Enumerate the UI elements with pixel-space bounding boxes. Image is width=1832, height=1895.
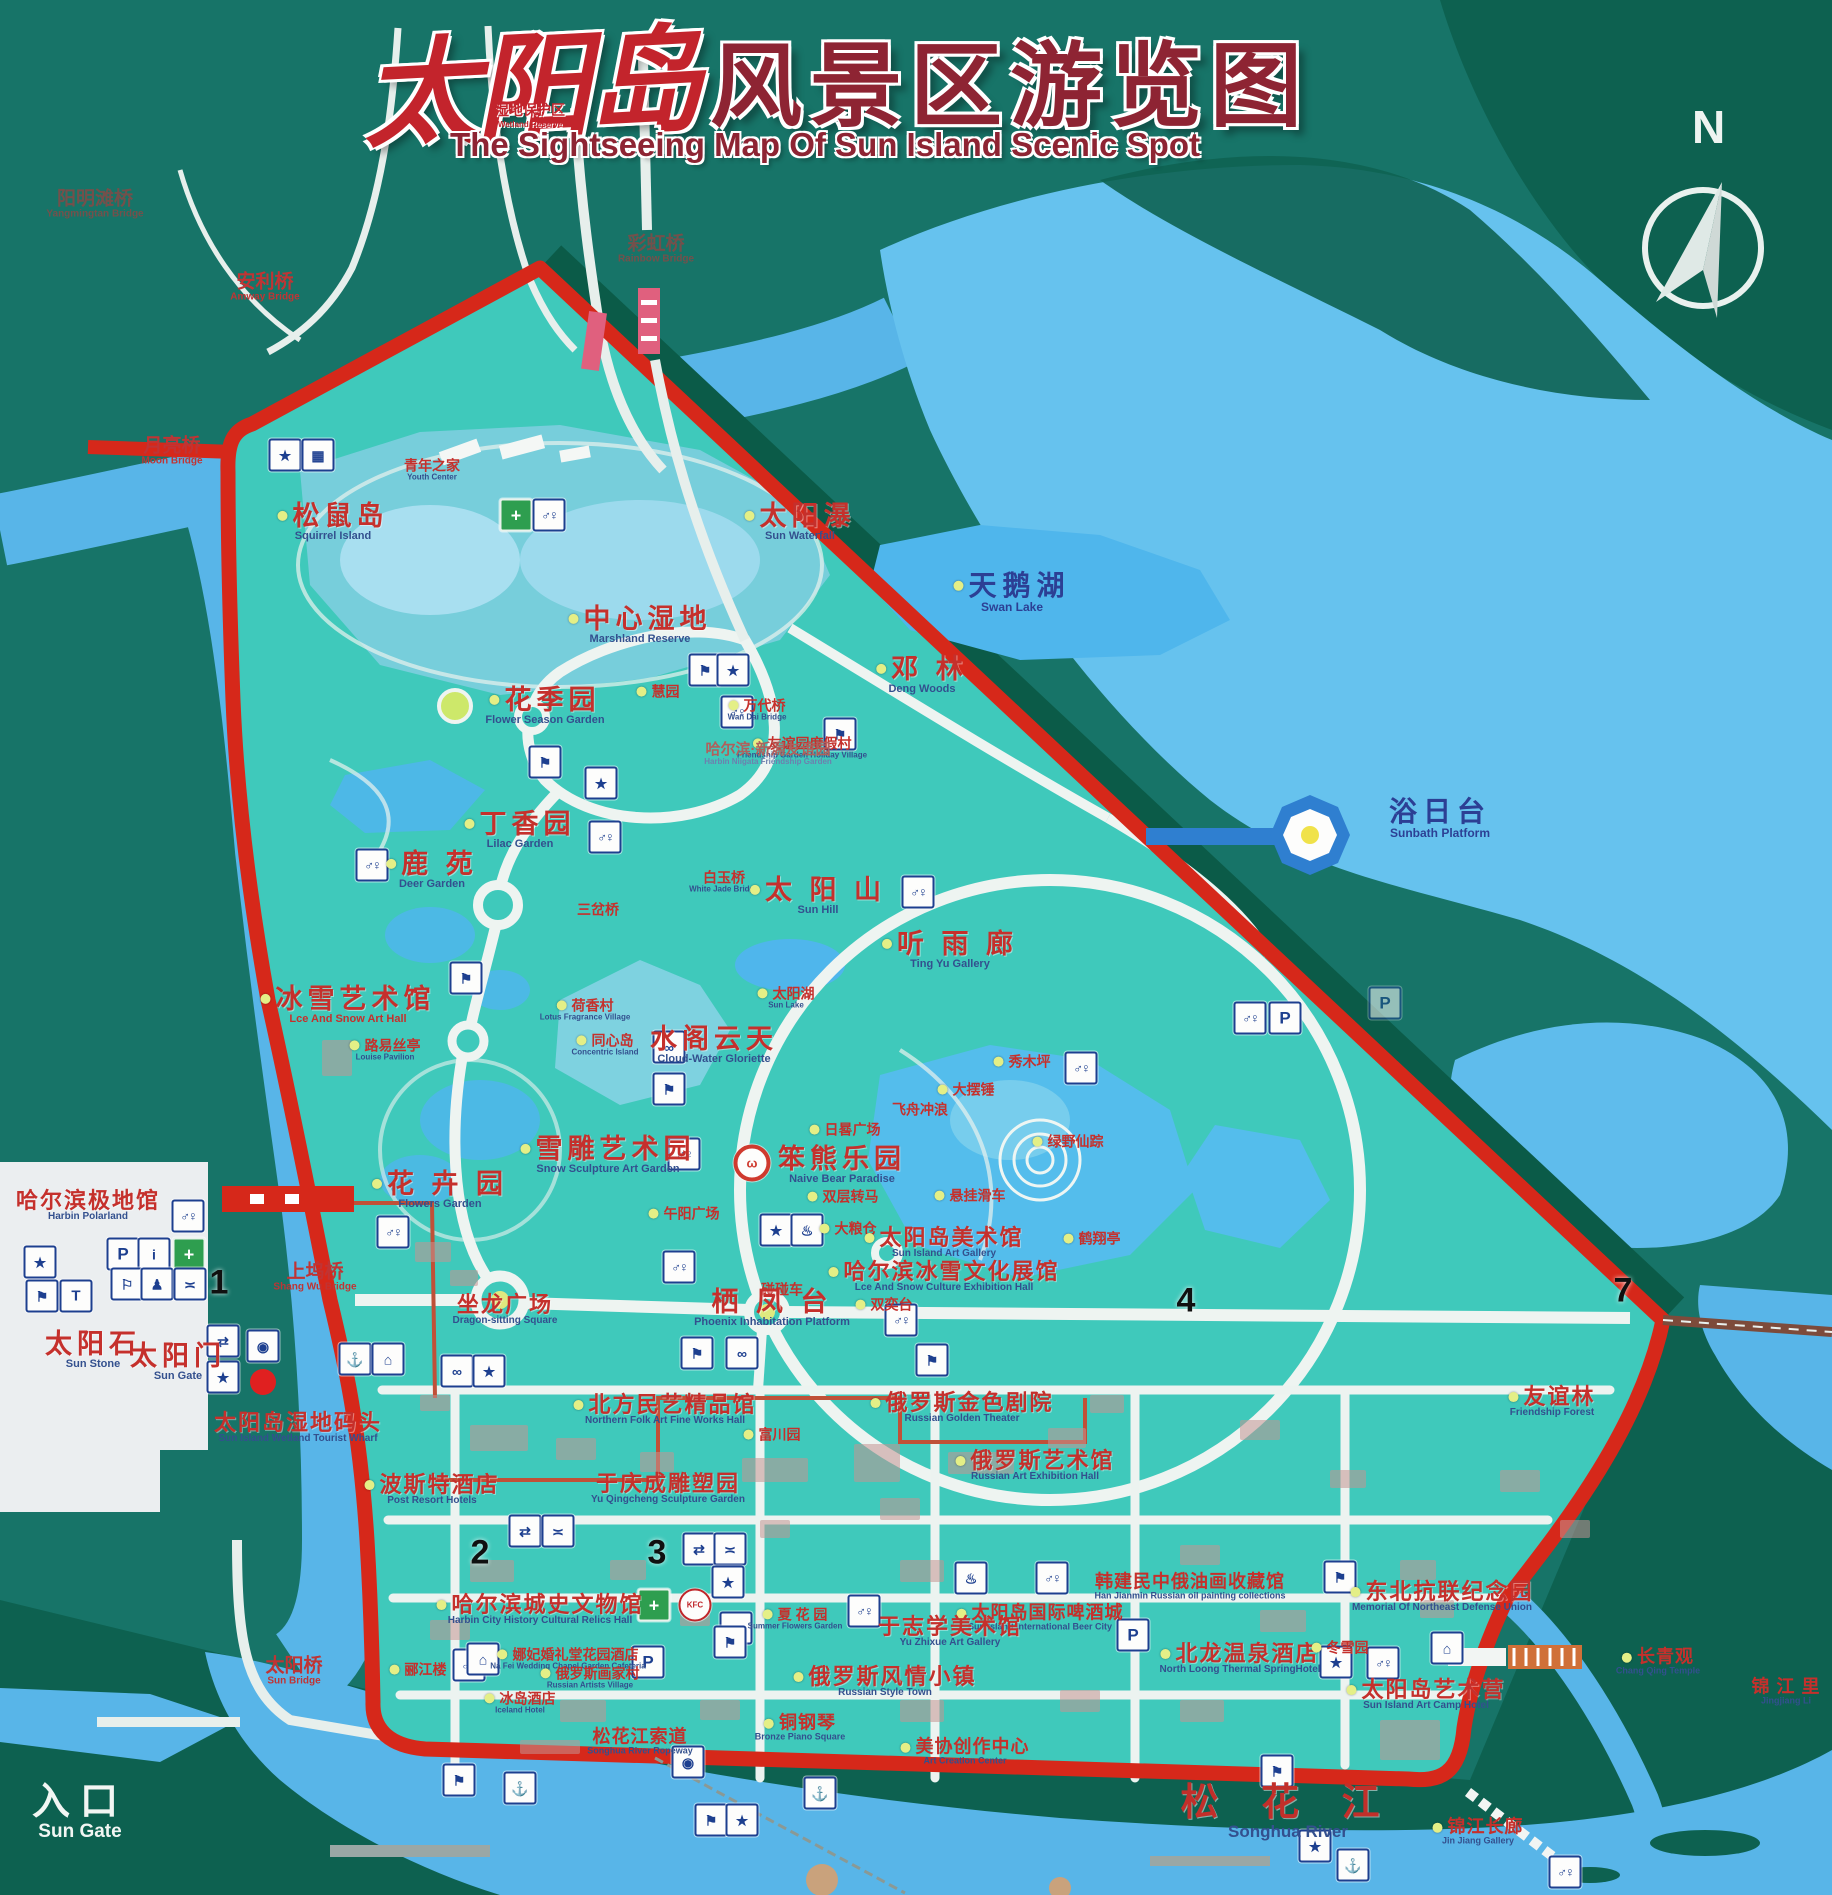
toilet-icon: ♂♀ bbox=[1036, 1562, 1069, 1595]
yu-zhixue-gallery: 于志学美术馆Yu Zhixue Art Gallery bbox=[878, 1615, 1022, 1649]
bus-icon: ⚑ bbox=[695, 1804, 728, 1837]
toilet-icon: ♂♀ bbox=[663, 1251, 696, 1284]
flower-season-garden: 花季园Flower Season Garden bbox=[485, 686, 604, 726]
building-footprint bbox=[1380, 1720, 1440, 1760]
squirrel-island: 松鼠岛Squirrel Island bbox=[278, 502, 389, 542]
poi-dot bbox=[390, 1665, 400, 1675]
sun-island-art-gallery: 太阳岛美术馆Sun Island Art Gallery bbox=[864, 1226, 1023, 1260]
poi-dot bbox=[386, 859, 396, 869]
poi-dot bbox=[745, 511, 755, 521]
hotel-icon: ⌂ bbox=[372, 1343, 405, 1376]
exchange-icon: ⇄ bbox=[683, 1533, 716, 1566]
medical-icon: + bbox=[500, 499, 533, 532]
parking-icon: P bbox=[1269, 1002, 1302, 1035]
poi-dot bbox=[1622, 1652, 1632, 1662]
route-marker-1: 1 bbox=[210, 1264, 229, 1303]
drink-icon: ♨ bbox=[955, 1562, 988, 1595]
poi-dot bbox=[810, 1125, 820, 1135]
poi-dot bbox=[649, 1209, 659, 1219]
poi-dot bbox=[350, 1041, 360, 1051]
toilet-icon: ♂♀ bbox=[377, 1216, 410, 1249]
shop-icon: ▦ bbox=[302, 439, 335, 472]
poi-dot bbox=[278, 511, 288, 521]
building-footprint bbox=[700, 1700, 740, 1720]
bus-icon: ⚑ bbox=[529, 746, 562, 779]
building-footprint bbox=[556, 1438, 596, 1460]
poi-dot bbox=[485, 1694, 495, 1704]
songhua-river: 松 花 江Songhua River bbox=[1180, 1783, 1395, 1841]
russian-style-town: 俄罗斯风情小镇Russian Style Town bbox=[793, 1665, 976, 1699]
poi-dot bbox=[876, 664, 886, 674]
taxi-icon: T bbox=[60, 1280, 93, 1313]
building-footprint bbox=[420, 1395, 450, 1411]
building-footprint bbox=[322, 1040, 352, 1076]
handshake-icon: ≍ bbox=[542, 1515, 575, 1548]
harbin-polarland: 哈尔滨极地馆Harbin Polarland bbox=[16, 1189, 160, 1223]
poi-dot bbox=[1160, 1649, 1170, 1659]
flowers-garden: 花 卉 园Flowers Garden bbox=[372, 1170, 508, 1210]
boat-icon: ⚓ bbox=[1337, 1849, 1370, 1882]
service-icon: ★ bbox=[760, 1214, 793, 1247]
building-footprint bbox=[742, 1458, 808, 1482]
wetland-wharf: 太阳岛湿地码头Sun Island Wetland Tourist Wharf bbox=[214, 1411, 382, 1445]
entrance: 入口Sun Gate bbox=[32, 1782, 128, 1842]
xiumu-ping: 秀木坪 bbox=[994, 1055, 1051, 1070]
yu-qingcheng-garden: 于庆成雕塑园Yu Qingcheng Sculpture Garden bbox=[591, 1472, 745, 1506]
parking-icon: P bbox=[1369, 987, 1402, 1020]
iceland-hotel: 冰岛酒店Iceland Hotel bbox=[485, 1691, 556, 1714]
poi-dot bbox=[1033, 1137, 1043, 1147]
building-footprint bbox=[1180, 1545, 1220, 1565]
sun-island-art-camp: 太阳岛艺术营Sun Island Art Camp Hotel bbox=[1346, 1678, 1505, 1712]
poi-dot bbox=[935, 1191, 945, 1201]
lijiang-building: 郦江楼 bbox=[390, 1663, 447, 1678]
building-footprint bbox=[1060, 1690, 1100, 1712]
big-pendulum: 大摆锤 bbox=[938, 1083, 995, 1098]
lilac-garden: 丁香园Lilac Garden bbox=[465, 810, 576, 850]
info-icon: i bbox=[138, 1238, 171, 1271]
bus-icon: ⚑ bbox=[26, 1280, 59, 1313]
poi-dot bbox=[364, 1480, 374, 1490]
fuchuan-garden: 富川园 bbox=[744, 1428, 801, 1443]
amway-bridge: 安利桥Amway Bridge bbox=[230, 273, 299, 304]
poi-dot bbox=[261, 994, 271, 1004]
russian-golden-theater: 俄罗斯金色剧院Russian Golden Theater bbox=[870, 1391, 1053, 1425]
poi-dot bbox=[808, 1192, 818, 1202]
poi-dot bbox=[828, 1267, 838, 1277]
cablecar-icon: ◉ bbox=[247, 1330, 280, 1363]
sun-gate: 太阳门Sun Gate bbox=[130, 1342, 226, 1382]
harbin-niigata-garden: 哈尔滨·新潟友谊园Harbin Niigata Friendship Garde… bbox=[704, 742, 832, 766]
labels-layer: 阳明滩桥Yangmingtan Bridge安利桥Amway Bridge彩虹桥… bbox=[0, 0, 1832, 1895]
marshland-reserve: 中心湿地Marshland Reserve bbox=[569, 605, 712, 645]
snow-sculpture-garden: 雪雕艺术园Snow Sculpture Art Garden bbox=[521, 1135, 696, 1175]
summer-flower-garden: 夏 花 园Summer Flowers Garden bbox=[748, 1607, 843, 1630]
sun-hill: 太 阳 山Sun Hill bbox=[750, 876, 886, 916]
art-creation-center: 美协创作中心Art Creation Center bbox=[901, 1738, 1030, 1767]
poi-dot bbox=[497, 1650, 507, 1660]
kfc-icon: KFC bbox=[679, 1589, 712, 1622]
bike-icon: ∞ bbox=[441, 1355, 474, 1388]
bus-icon: ⚑ bbox=[681, 1337, 714, 1370]
building-footprint bbox=[1240, 1420, 1280, 1440]
service-icon: ★ bbox=[726, 1804, 759, 1837]
hotel-icon: ⌂ bbox=[1431, 1632, 1464, 1665]
double-chess-platform: 双奕台 bbox=[856, 1298, 913, 1313]
building-footprint bbox=[1260, 1610, 1306, 1632]
route-marker-2: 2 bbox=[471, 1534, 490, 1573]
poi-dot bbox=[1346, 1685, 1356, 1695]
cloud-water-gloriette: 水阁云天Cloud-Water Gloriette bbox=[650, 1025, 778, 1065]
poi-dot bbox=[1433, 1822, 1443, 1832]
parking-icon: P bbox=[107, 1238, 140, 1271]
sancha-bridge: 三岔桥 bbox=[577, 903, 619, 918]
service-icon: ★ bbox=[585, 767, 618, 800]
songhua-ropeway: 松花江索道Songhua River Ropeway bbox=[587, 1728, 693, 1757]
toilet-icon: ♂♀ bbox=[1549, 1856, 1582, 1889]
poi-dot bbox=[573, 1400, 583, 1410]
route-marker-4: 4 bbox=[1177, 1282, 1196, 1321]
building-footprint bbox=[900, 1560, 944, 1582]
fairy-trace: 绿野仙踪 bbox=[1033, 1135, 1104, 1150]
moon-bridge: 月亮桥Moon Bridge bbox=[141, 437, 202, 468]
building-footprint bbox=[1330, 1470, 1366, 1488]
sundial-square: 日晷广场 bbox=[810, 1123, 881, 1138]
white-jade-bridge: 白玉桥White Jade Bridge bbox=[689, 870, 759, 893]
swan-lake: 天鹅湖Swan Lake bbox=[953, 571, 1070, 613]
service-icon: ★ bbox=[473, 1355, 506, 1388]
poi-dot bbox=[372, 1179, 382, 1189]
boat-icon: ⚓ bbox=[804, 1777, 837, 1810]
poi-dot bbox=[953, 581, 963, 591]
toilet-icon: ♂♀ bbox=[848, 1595, 881, 1628]
concentric-island: 同心岛Concentric Island bbox=[571, 1033, 638, 1056]
wandai-bridge: 万代桥Wan Dai Bridge bbox=[728, 698, 787, 721]
building-footprint bbox=[880, 1498, 920, 1520]
crowd-icon: ♟ bbox=[141, 1268, 174, 1301]
building-footprint bbox=[1500, 1470, 1540, 1492]
deer-garden: 鹿 苑Deer Garden bbox=[386, 850, 478, 890]
poi-dot bbox=[901, 1742, 911, 1752]
poi-dot bbox=[556, 1001, 566, 1011]
route-marker-7: 7 bbox=[1614, 1272, 1633, 1311]
building-footprint bbox=[760, 1520, 790, 1538]
boat-icon: ⚓ bbox=[504, 1772, 537, 1805]
toilet-icon: ♂♀ bbox=[356, 849, 389, 882]
bus-icon: ⚑ bbox=[443, 1764, 476, 1797]
service-icon: ★ bbox=[24, 1246, 57, 1279]
poi-dot bbox=[744, 1430, 754, 1440]
poi-dot bbox=[489, 695, 499, 705]
building-footprint bbox=[640, 1452, 674, 1472]
post-hotel: 波斯特酒店Post Resort Hotels bbox=[364, 1473, 499, 1507]
jinjiang-gallery: 锦江长廊Jin Jiang Gallery bbox=[1433, 1818, 1524, 1847]
sun-waterfall: 太阳瀑Sun Waterfall bbox=[745, 502, 856, 542]
bus-icon: ⚑ bbox=[653, 1073, 686, 1106]
sunbath-platform: 浴日台Sunbath Platform bbox=[1389, 797, 1491, 839]
medical-icon: + bbox=[173, 1238, 206, 1271]
poi-dot bbox=[882, 939, 892, 949]
poi-dot bbox=[938, 1085, 948, 1095]
building-footprint bbox=[900, 1700, 944, 1722]
poi-dot bbox=[870, 1398, 880, 1408]
bus-icon: ⚑ bbox=[450, 962, 483, 995]
building-footprint bbox=[560, 1700, 606, 1722]
ice-snow-culture-hall: 哈尔滨冰雪文化展馆Lce And Snow Culture Exhibition… bbox=[828, 1260, 1059, 1294]
service-icon: ★ bbox=[712, 1566, 745, 1599]
crane-pavilion: 鹤翔亭 bbox=[1064, 1232, 1121, 1247]
poi-dot bbox=[541, 1669, 551, 1679]
poi-dot bbox=[521, 1144, 531, 1154]
changqing-temple: 长青观Chang Qing Temple bbox=[1616, 1648, 1700, 1677]
toilet-icon: ♂♀ bbox=[1367, 1647, 1400, 1680]
toilet-icon: ♂♀ bbox=[1234, 1002, 1267, 1035]
sun-bridge: 太阳桥Sun Bridge bbox=[265, 1657, 322, 1688]
russian-art-hall: 俄罗斯艺术馆Russian Art Exhibition Hall bbox=[955, 1449, 1114, 1483]
poi-dot bbox=[793, 1672, 803, 1682]
deng-woods: 邓 林Deng Woods bbox=[876, 655, 968, 695]
toilet-icon: ♂♀ bbox=[172, 1200, 205, 1233]
youth-center: 青年之家Youth Center bbox=[404, 458, 460, 481]
building-footprint bbox=[610, 1560, 646, 1580]
shangwu-bridge: 上坞桥Shang Wu Bridge bbox=[273, 1263, 356, 1294]
service-icon: ★ bbox=[269, 439, 302, 472]
friendship-forest: 友谊林Friendship Forest bbox=[1508, 1385, 1595, 1419]
poi-dot bbox=[763, 1610, 773, 1620]
hui-garden: 慧园 bbox=[637, 685, 680, 700]
han-jianmin-collection: 韩建民中俄油画收藏馆Han Jianmin Russian oil painti… bbox=[1094, 1573, 1285, 1602]
route-marker-3: 3 bbox=[648, 1534, 667, 1573]
poi-dot bbox=[728, 701, 738, 711]
service-icon: ★ bbox=[717, 654, 750, 687]
bike-icon: ∞ bbox=[726, 1337, 759, 1370]
building-footprint bbox=[470, 1425, 528, 1451]
poi-dot bbox=[637, 687, 647, 697]
bear-icon: ω bbox=[734, 1145, 771, 1182]
russian-artists-village: 俄罗斯画家村Russian Artists Village bbox=[541, 1666, 640, 1689]
poi-dot bbox=[577, 1036, 587, 1046]
northern-folk-art-hall: 北方民艺精品馆Northern Folk Art Fine Works Hall bbox=[573, 1393, 756, 1427]
yangmingtan-bridge: 阳明滩桥Yangmingtan Bridge bbox=[46, 190, 143, 221]
poi-dot bbox=[955, 1456, 965, 1466]
toilet-icon: ♂♀ bbox=[1065, 1052, 1098, 1085]
poi-dot bbox=[820, 1224, 830, 1234]
poi-dot bbox=[1064, 1234, 1074, 1244]
poi-dot bbox=[1350, 1587, 1360, 1597]
bus-icon: ⚑ bbox=[714, 1626, 747, 1659]
poi-dot bbox=[569, 614, 579, 624]
naive-bear-paradise: 笨熊乐园Naive Bear Paradise bbox=[778, 1145, 906, 1185]
poi-dot bbox=[864, 1233, 874, 1243]
ting-yu-gallery: 听 雨 廊Ting Yu Gallery bbox=[882, 930, 1018, 970]
poi-dot bbox=[994, 1057, 1004, 1067]
memorial-northeast: 东北抗联纪念园Memorial Of Northeast Defense Uni… bbox=[1350, 1580, 1533, 1614]
boat-surfing: 飞舟冲浪 bbox=[892, 1103, 948, 1118]
poi-dot bbox=[465, 819, 475, 829]
poi-dot bbox=[1312, 1643, 1322, 1653]
boat-icon: ⚓ bbox=[339, 1343, 372, 1376]
building-footprint bbox=[1180, 1700, 1224, 1722]
winter-snow-garden: 冬雪园 bbox=[1312, 1641, 1369, 1656]
toilet-icon: ♂♀ bbox=[589, 821, 622, 854]
building-footprint bbox=[1400, 1560, 1436, 1580]
sun-lake: 太阳湖Sun Lake bbox=[758, 986, 815, 1009]
building-footprint bbox=[520, 1740, 580, 1754]
phoenix-platform: 栖 凤 台Phoenix Inhabitation Platform bbox=[694, 1288, 850, 1328]
hanging-coaster: 悬挂滑车 bbox=[935, 1189, 1006, 1204]
rainbow-bridge: 彩虹桥Rainbow Bridge bbox=[618, 235, 694, 266]
poi-dot bbox=[758, 989, 768, 999]
north-loong-hotel: 北龙温泉酒店North Loong Thermal SpringHotel bbox=[1159, 1642, 1320, 1676]
poi-dot bbox=[856, 1300, 866, 1310]
lotus-village: 荷香村Lotus Fragrance Village bbox=[540, 998, 631, 1021]
building-footprint bbox=[415, 1242, 451, 1262]
poi-dot bbox=[436, 1600, 446, 1610]
building-footprint bbox=[1090, 1395, 1124, 1413]
harbin-history-hall: 哈尔滨城史文物馆Harbin City History Cultural Rel… bbox=[436, 1593, 643, 1627]
toilet-icon: ♂♀ bbox=[902, 876, 935, 909]
toilet-icon: ♂♀ bbox=[533, 499, 566, 532]
building-footprint bbox=[1048, 1428, 1086, 1448]
louise-pavilion: 路易丝亭Louise Pavilion bbox=[350, 1038, 421, 1061]
sun-stone: 太阳石Sun Stone bbox=[45, 1330, 141, 1370]
ice-snow-art-hall: 冰雪艺术馆Lce And Snow Art Hall bbox=[261, 985, 436, 1025]
poi-dot bbox=[750, 885, 760, 895]
exchange-icon: ⇄ bbox=[509, 1515, 542, 1548]
sun-island-sightseeing-map: 太阳岛 湿地保护区 Wetland Reserve 风景区游览图 The Sig… bbox=[0, 0, 1832, 1895]
handshake-icon: ≍ bbox=[174, 1268, 207, 1301]
wuyang-square: 午阳广场 bbox=[649, 1207, 720, 1222]
jingjiang-li: 锦 江 里Jingjiang Li bbox=[1751, 1678, 1820, 1707]
poi-dot bbox=[764, 1718, 774, 1728]
bus-icon: ⚑ bbox=[916, 1344, 949, 1377]
bronze-piano: 铜钢琴Bronze Piano Square bbox=[755, 1714, 846, 1743]
building-footprint bbox=[854, 1444, 900, 1482]
building-footprint bbox=[450, 1270, 478, 1286]
handshake-icon: ≍ bbox=[714, 1533, 747, 1566]
dragon-sitting-square: 坐龙广场Dragon-sitting Square bbox=[452, 1293, 557, 1327]
building-footprint bbox=[1560, 1520, 1590, 1538]
guide-icon: ⚐ bbox=[111, 1268, 144, 1301]
poi-dot bbox=[1508, 1392, 1518, 1402]
double-carousel: 双层转马 bbox=[808, 1190, 879, 1205]
